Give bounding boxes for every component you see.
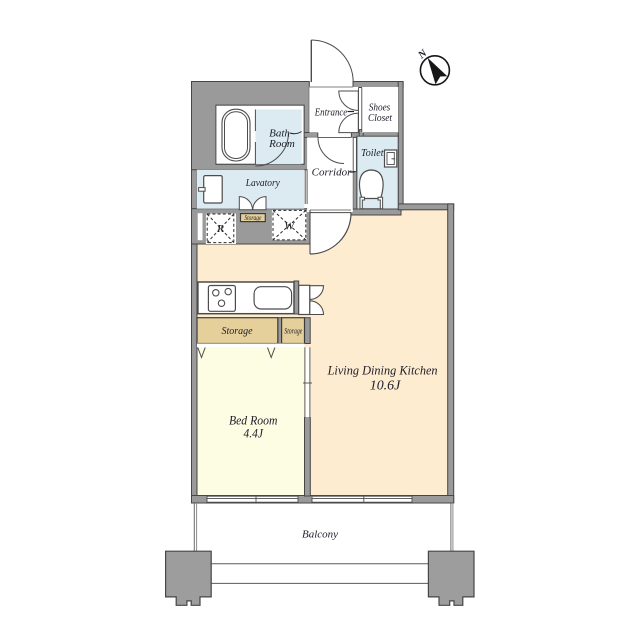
svg-text:W: W xyxy=(284,219,295,233)
svg-text:Room: Room xyxy=(268,138,295,150)
svg-text:Corridor: Corridor xyxy=(312,167,352,179)
svg-text:Entrance: Entrance xyxy=(314,108,348,119)
svg-text:Lavatory: Lavatory xyxy=(245,177,280,189)
svg-text:Storage: Storage xyxy=(222,326,253,337)
svg-text:Living Dining Kitchen: Living Dining Kitchen xyxy=(327,362,438,377)
svg-text:4.4J: 4.4J xyxy=(243,426,264,441)
svg-text:10.6J: 10.6J xyxy=(370,378,401,393)
svg-text:Storage: Storage xyxy=(284,327,302,336)
svg-text:Storage: Storage xyxy=(244,214,262,222)
svg-text:Toilet: Toilet xyxy=(361,148,385,159)
svg-text:Closet: Closet xyxy=(368,113,392,124)
svg-text:Balcony: Balcony xyxy=(302,528,338,540)
svg-text:R: R xyxy=(216,223,224,235)
